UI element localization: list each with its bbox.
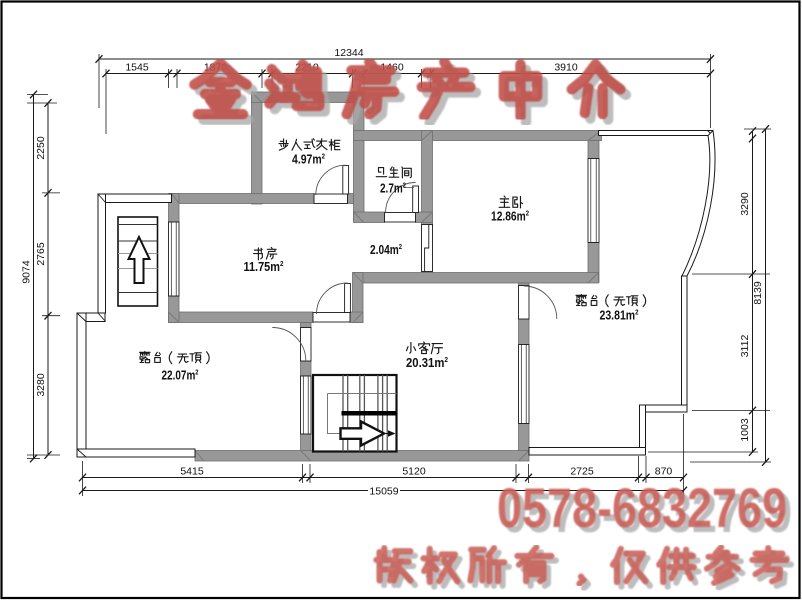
svg-text:8139: 8139 [752,281,764,305]
svg-text:5120: 5120 [402,466,426,478]
svg-text:0578-6832769: 0578-6832769 [497,476,787,539]
svg-text:4.97m2: 4.97m2 [292,151,325,166]
svg-text:23.81m2: 23.81m2 [600,307,639,322]
svg-text:2.04m2: 2.04m2 [370,242,402,257]
svg-text:9074: 9074 [21,260,33,284]
svg-text:20.31m2: 20.31m2 [406,355,448,370]
svg-text:1545: 1545 [125,62,149,74]
svg-text:12.86m2: 12.86m2 [491,208,529,223]
svg-text:3112: 3112 [739,335,751,358]
svg-text:22.07m2: 22.07m2 [162,367,199,382]
svg-text:5415: 5415 [180,466,204,478]
svg-text:2765: 2765 [35,242,47,266]
svg-text:3910: 3910 [554,62,578,74]
svg-text:1003: 1003 [739,418,751,442]
svg-text:3280: 3280 [35,373,47,397]
svg-text:15059: 15059 [369,486,398,498]
svg-text:12344: 12344 [334,47,363,59]
svg-text:11.75m2: 11.75m2 [244,259,284,274]
svg-text:3290: 3290 [739,192,751,216]
svg-text:2250: 2250 [35,136,47,160]
svg-text:2.7m2: 2.7m2 [380,180,406,195]
